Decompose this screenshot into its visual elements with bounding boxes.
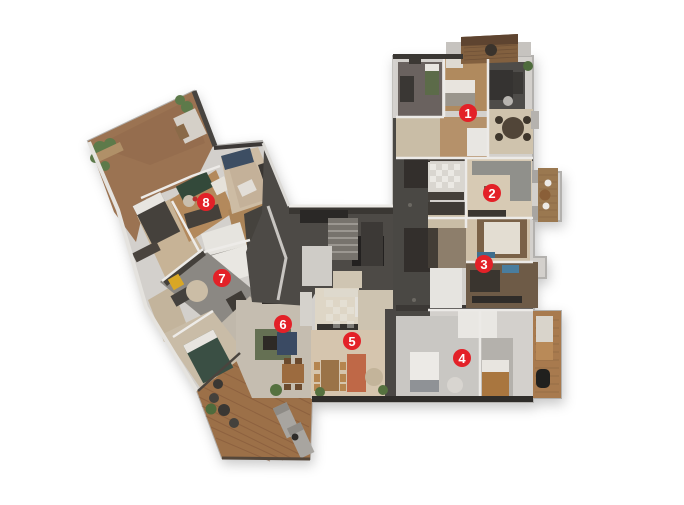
svg-text:6: 6 — [279, 317, 286, 332]
svg-text:8: 8 — [202, 195, 209, 210]
svg-text:5: 5 — [348, 334, 355, 349]
svg-text:2: 2 — [488, 186, 495, 201]
svg-text:3: 3 — [480, 257, 487, 272]
svg-text:7: 7 — [218, 271, 225, 286]
svg-text:1: 1 — [464, 106, 471, 121]
svg-text:4: 4 — [458, 351, 466, 366]
